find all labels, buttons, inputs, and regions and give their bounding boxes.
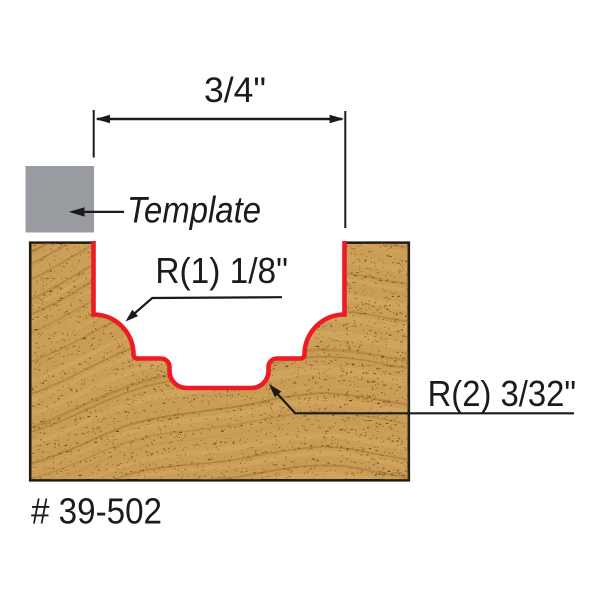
svg-text:R(2) 3/32": R(2) 3/32"	[428, 373, 576, 414]
svg-text:3/4": 3/4"	[204, 71, 266, 110]
svg-text:R(1) 1/8": R(1) 1/8"	[155, 250, 288, 291]
svg-text:Template: Template	[127, 190, 261, 231]
svg-text:# 39-502: # 39-502	[31, 491, 162, 532]
